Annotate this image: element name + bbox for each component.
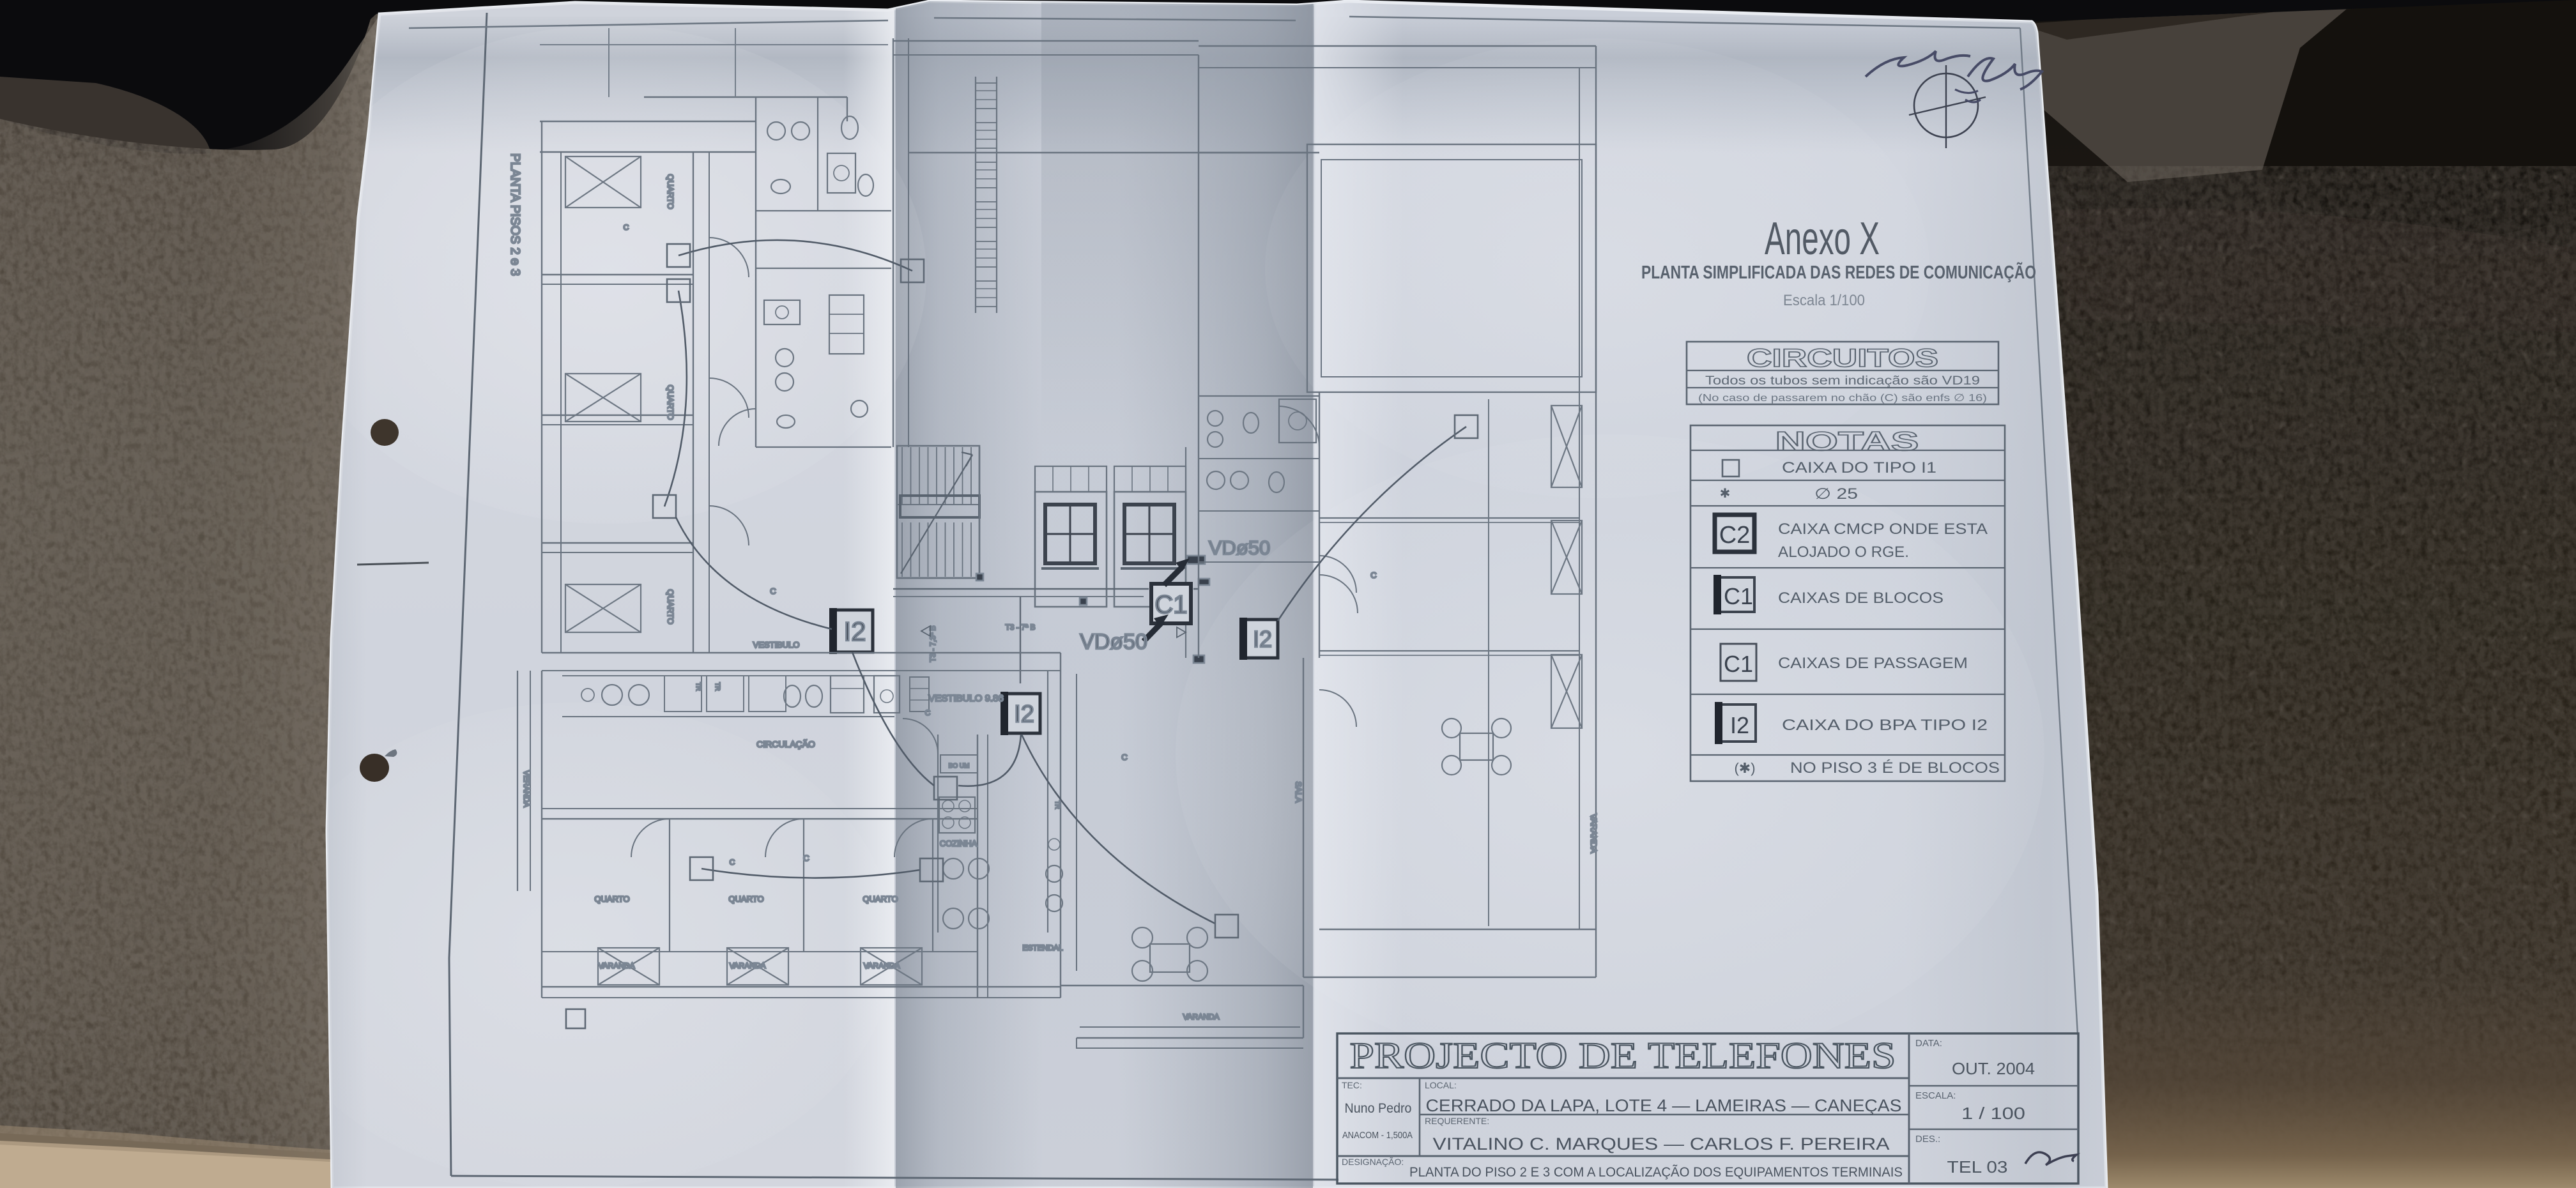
svg-text:LOCAL:: LOCAL: (1425, 1080, 1457, 1090)
svg-text:VESTIBULO 9.86: VESTIBULO 9.86 (928, 693, 1004, 704)
svg-text:CAIXA DO BPA TIPO I2: CAIXA DO BPA TIPO I2 (1782, 717, 1988, 734)
svg-text:VARANDA: VARANDA (598, 961, 634, 970)
svg-text:C: C (1370, 570, 1376, 580)
svg-text:T3 - 7ª B: T3 - 7ª B (1005, 623, 1035, 632)
svg-text:VARANDA: VARANDA (1183, 1012, 1219, 1021)
svg-text:PLANTA DO PISO 2 E 3 COM A LOC: PLANTA DO PISO 2 E 3 COM A LOCALIZAÇÃO D… (1409, 1164, 1903, 1180)
svg-text:C2: C2 (1719, 522, 1751, 549)
svg-text:C1: C1 (1724, 651, 1753, 677)
svg-text:CAIXA DO TIPO I1: CAIXA DO TIPO I1 (1782, 459, 1936, 476)
svg-text:NOTAS: NOTAS (1775, 426, 1919, 456)
svg-text:VESTIBULO: VESTIBULO (753, 640, 800, 650)
svg-text:I2: I2 (843, 616, 866, 646)
svg-text:CERRADO DA LAPA, LOTE 4 — LAME: CERRADO DA LAPA, LOTE 4 — LAMEIRAS — CAN… (1426, 1096, 1902, 1115)
svg-text:I2: I2 (1253, 626, 1272, 652)
svg-text:QUARTO: QUARTO (728, 894, 763, 904)
svg-text:I2: I2 (1730, 712, 1749, 738)
svg-text:Nuno Pedro: Nuno Pedro (1345, 1101, 1412, 1116)
svg-text:DATA:: DATA: (1915, 1038, 1942, 1049)
svg-text:PLANTA PISOS 2 e 3: PLANTA PISOS 2 e 3 (508, 153, 522, 276)
svg-text:VERANDA: VERANDA (522, 770, 531, 807)
svg-text:QUARTO: QUARTO (666, 174, 675, 209)
svg-text:QUARTO: QUARTO (594, 894, 629, 904)
svg-text:NO PISO 3 É DE BLOCOS: NO PISO 3 É DE BLOCOS (1790, 759, 2000, 777)
svg-text:VARANDA: VARANDA (729, 961, 765, 970)
svg-text:VARANDA: VARANDA (863, 961, 900, 970)
svg-text:QUARTO: QUARTO (666, 385, 675, 420)
svg-text:PROJECTO DE TELEFONES: PROJECTO DE TELEFONES (1350, 1035, 1896, 1076)
svg-text:C: C (624, 223, 629, 232)
svg-text:TR: TR (714, 682, 721, 690)
svg-text:I2: I2 (1014, 701, 1034, 728)
svg-text:CAIXAS DE PASSAGEM: CAIXAS DE PASSAGEM (1778, 655, 1968, 672)
svg-text:VARANDA: VARANDA (1589, 814, 1598, 853)
svg-text:C: C (770, 586, 776, 596)
svg-text:Escala 1/100: Escala 1/100 (1783, 292, 1865, 309)
svg-text:TR: TR (1054, 800, 1061, 809)
svg-text:Todos os tubos sem indicação s: Todos os tubos sem indicação são VD19 (1705, 374, 1980, 388)
svg-text:SALA: SALA (1294, 781, 1303, 803)
svg-text:REQUERENTE:: REQUERENTE: (1425, 1116, 1489, 1126)
svg-text:ESCALA:: ESCALA: (1915, 1090, 1956, 1101)
svg-text:C: C (1121, 752, 1127, 762)
svg-text:C1: C1 (1154, 591, 1187, 619)
svg-text:TEC:: TEC: (1342, 1080, 1362, 1090)
svg-text:TEL 03: TEL 03 (1947, 1157, 2008, 1177)
svg-text:PLANTA SIMPLIFICADA DAS REDES: PLANTA SIMPLIFICADA DAS REDES DE COMUNIC… (1641, 261, 2036, 283)
svg-text:CAIXAS DE BLOCOS: CAIXAS DE BLOCOS (1778, 590, 1943, 607)
svg-text:DES.:: DES.: (1915, 1134, 1940, 1145)
svg-text:CIRCUITOS: CIRCUITOS (1747, 344, 1938, 372)
svg-text:C: C (730, 858, 735, 867)
svg-text:OUT. 2004: OUT. 2004 (1952, 1059, 2035, 1078)
svg-text:CIRCULAÇÃO: CIRCULAÇÃO (756, 739, 815, 749)
svg-text:✱: ✱ (1720, 487, 1731, 501)
svg-text:ALOJADO O RGE.: ALOJADO O RGE. (1778, 544, 1909, 561)
svg-text:QUARTO: QUARTO (862, 894, 898, 904)
svg-text:C1: C1 (1724, 583, 1753, 609)
svg-text:C: C (803, 853, 809, 863)
svg-text:COZINHA: COZINHA (940, 839, 977, 848)
svg-text:1 / 100: 1 / 100 (1961, 1104, 2025, 1123)
svg-text:(✱): (✱) (1734, 760, 1755, 776)
svg-text:VDø50: VDø50 (1209, 537, 1270, 559)
svg-text:QUARTO: QUARTO (666, 589, 675, 624)
svg-text:BO UM: BO UM (949, 763, 970, 770)
svg-text:ANACOM - 1,500A: ANACOM - 1,500A (1342, 1130, 1413, 1141)
svg-text:Anexo X: Anexo X (1765, 213, 1880, 264)
svg-text:VITALINO C. MARQUES — CARLOS F: VITALINO C. MARQUES — CARLOS F. PEREIRA (1433, 1134, 1890, 1154)
svg-text:DESIGNAÇÃO:: DESIGNAÇÃO: (1342, 1157, 1404, 1167)
svg-text:(No caso de passarem no chão (: (No caso de passarem no chão (C) são enf… (1698, 393, 1987, 404)
svg-text:C: C (925, 708, 931, 717)
svg-text:TR: TR (694, 682, 701, 690)
svg-text:ESTENDAL: ESTENDAL (1022, 943, 1063, 952)
svg-text:CAIXA CMCP ONDE ESTA: CAIXA CMCP ONDE ESTA (1778, 521, 1988, 538)
svg-text:∅ 25: ∅ 25 (1814, 485, 1858, 503)
svg-text:VDø50: VDø50 (1080, 630, 1147, 654)
